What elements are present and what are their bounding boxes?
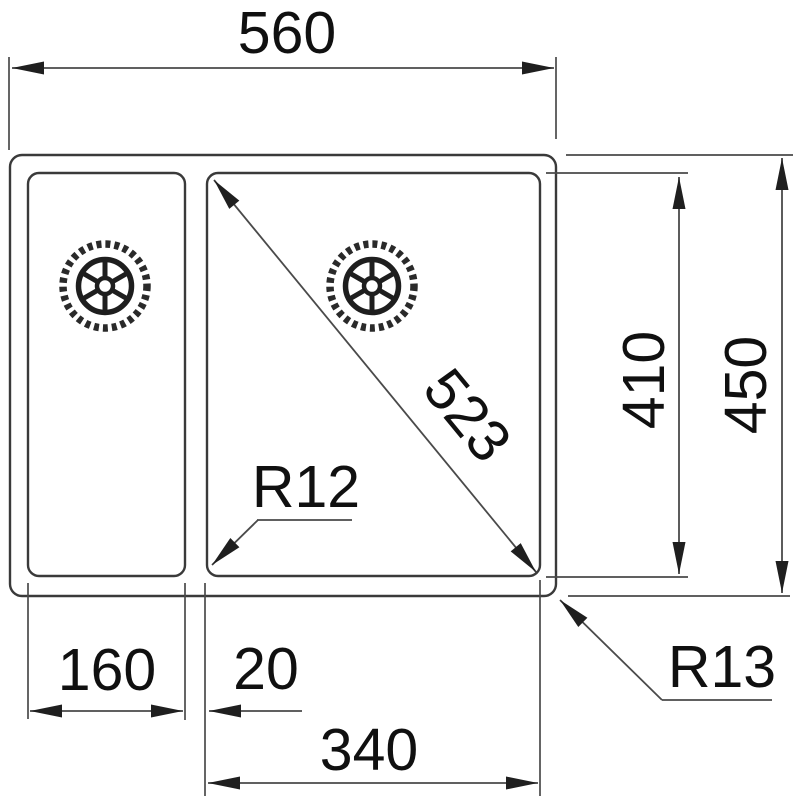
callout-outer-radius: R13: [560, 600, 776, 700]
sink-technical-drawing: 560 410 450 523 R12 R13 160: [0, 0, 800, 800]
left-bowl-outline: [28, 173, 185, 576]
sink-technical-drawing-page: 560 410 450 523 R12 R13 160: [0, 0, 800, 800]
dimension-overall-width: 560: [9, 0, 556, 150]
dim-label-divider-width: 20: [233, 636, 299, 702]
dim-label-right-bowl-width: 340: [320, 717, 418, 783]
dimension-divider-width: 20: [205, 583, 302, 796]
dim-label-left-bowl-width: 160: [58, 637, 156, 703]
dim-label-overall-depth: 450: [713, 336, 779, 434]
dimension-inner-depth: 410: [546, 173, 688, 577]
leader-line: [560, 600, 662, 700]
dimension-left-bowl-width: 160: [28, 583, 185, 720]
dim-label-overall-width: 560: [238, 0, 336, 66]
dim-label-outer-radius: R13: [668, 634, 776, 700]
dim-label-inner-depth: 410: [611, 331, 677, 429]
dim-label-inner-radius: R12: [252, 454, 360, 520]
